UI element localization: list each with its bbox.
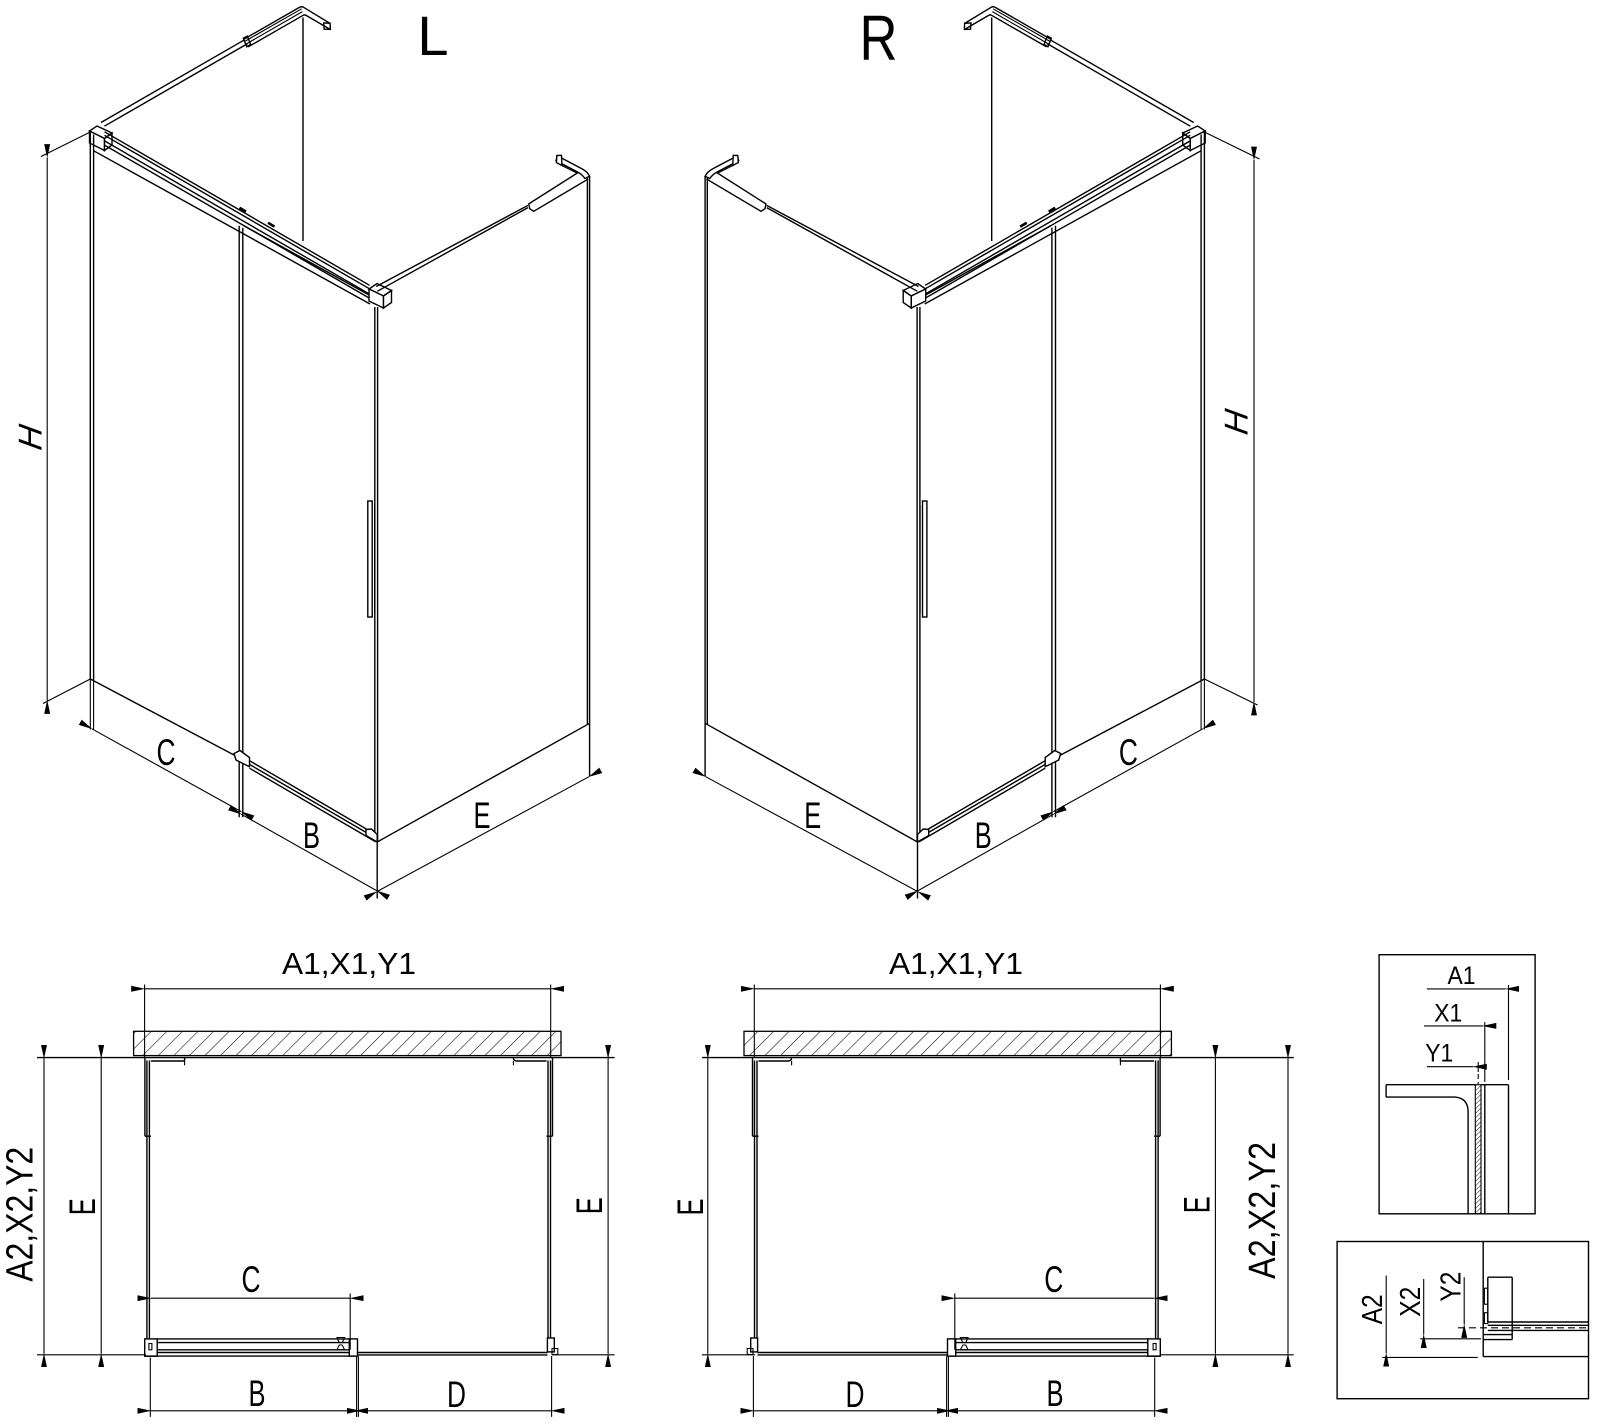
- svg-text:X1: X1: [1434, 1000, 1462, 1028]
- svg-text:E: E: [670, 1199, 711, 1216]
- svg-text:A1,X1,Y1: A1,X1,Y1: [282, 946, 416, 981]
- svg-text:B: B: [249, 1373, 266, 1414]
- svg-text:A2,X2,Y2: A2,X2,Y2: [0, 1147, 42, 1282]
- svg-text:C: C: [1044, 1259, 1063, 1300]
- svg-text:X2: X2: [1395, 1287, 1427, 1317]
- svg-text:B: B: [975, 815, 992, 856]
- svg-text:B: B: [1047, 1373, 1064, 1414]
- svg-text:R: R: [860, 2, 898, 74]
- svg-text:D: D: [447, 1374, 466, 1415]
- svg-text:C: C: [157, 732, 176, 773]
- svg-text:C: C: [1119, 732, 1138, 773]
- svg-text:E: E: [474, 795, 491, 836]
- svg-text:E: E: [1176, 1196, 1217, 1213]
- svg-text:E: E: [62, 1198, 103, 1215]
- svg-text:Y2: Y2: [1435, 1272, 1467, 1302]
- svg-text:D: D: [846, 1374, 865, 1415]
- svg-text:C: C: [242, 1259, 261, 1300]
- svg-text:E: E: [569, 1197, 610, 1214]
- svg-text:E: E: [804, 795, 821, 836]
- svg-text:Y1: Y1: [1425, 1040, 1453, 1068]
- svg-text:B: B: [303, 815, 320, 856]
- svg-text:A1,X1,Y1: A1,X1,Y1: [889, 946, 1023, 981]
- svg-text:L: L: [417, 4, 448, 67]
- svg-text:A1: A1: [1448, 962, 1476, 990]
- svg-text:A2: A2: [1357, 1294, 1389, 1324]
- svg-text:A2,X2,Y2: A2,X2,Y2: [1242, 1142, 1284, 1279]
